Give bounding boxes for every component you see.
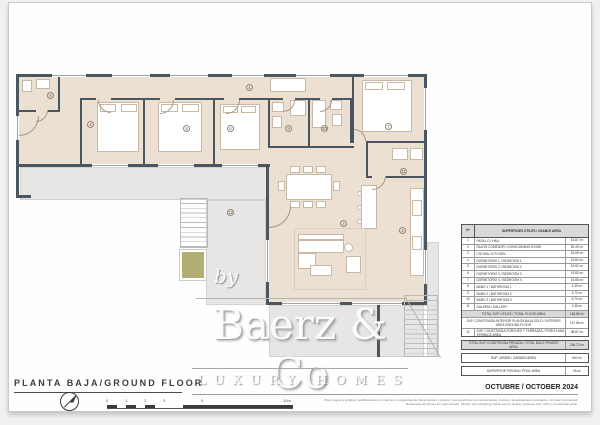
rug-outline	[294, 228, 366, 290]
area-row-num: 9	[462, 291, 475, 297]
window	[232, 74, 264, 77]
area-row-label: DORMITORIO 2 / BEDROOM 2	[475, 265, 565, 269]
garden-area-value: 540 m²	[565, 354, 588, 362]
stool	[357, 219, 362, 224]
window	[92, 164, 128, 167]
area-row-val: 4.35 m²	[565, 284, 588, 290]
area-row-label: BAÑO 1 / BATHROOM 1	[475, 285, 565, 289]
logo-divider-middle	[192, 368, 408, 369]
area-row: 8BAÑO 1 / BATHROOM 14.35 m²	[462, 284, 588, 291]
scale-segment	[202, 405, 293, 408]
furniture	[412, 200, 422, 216]
wall	[80, 100, 82, 164]
furniture	[316, 166, 326, 173]
page: { "document": { "floor_title": "PLANTA B…	[0, 0, 600, 425]
wall	[16, 167, 19, 198]
furniture	[290, 166, 300, 173]
door-opening	[354, 141, 366, 143]
furniture	[332, 114, 342, 126]
area-row-num: 5	[462, 264, 475, 270]
area-row-num: 1	[462, 238, 475, 244]
area-row-label: DORMITORIO 4 / BEDROOM 4	[475, 278, 565, 282]
scale-label-1: 1	[125, 398, 127, 403]
scale-segment	[145, 405, 155, 408]
scale-label-5: 5	[201, 398, 203, 403]
window	[296, 74, 330, 77]
disclaimer-line-2: Measurements shown are approximate. Kitc…	[288, 402, 578, 406]
floor-title: PLANTA BAJA/GROUND FLOOR	[14, 378, 203, 388]
area-row-num: 2	[462, 245, 475, 251]
total-built-label: TOTAL SUP. CONSTRUIDA PRIVADA / TOTAL BU…	[462, 341, 565, 350]
area-row-label: COCINA / KITCHEN	[475, 252, 565, 256]
window	[158, 164, 194, 167]
area-row-num: 7	[462, 278, 475, 284]
scale-segment	[107, 405, 117, 408]
window	[364, 74, 408, 77]
area-row-val: 15.82 m²	[565, 264, 588, 270]
window	[112, 74, 150, 77]
staircase	[180, 198, 208, 248]
area-row-label: PASILLO / HALL	[475, 239, 565, 243]
area-table-main-box: Nº SUPERFICIES ÚTILES / USABLE AREA 1PAS…	[461, 224, 589, 337]
scale-segment	[126, 405, 136, 408]
garden-area-row: SUP. JARDÍN / GARDEN AREA 540 m²	[461, 353, 589, 363]
wall	[143, 100, 145, 164]
garden-area-label: SUP. JARDÍN / GARDEN AREA	[462, 356, 565, 361]
area-row: 2SALÓN COMEDOR / LIVING-DINING ROOM52.49…	[462, 245, 588, 252]
furniture	[361, 185, 377, 229]
porches-number: 12	[462, 329, 475, 336]
furniture	[410, 148, 423, 160]
furniture	[392, 148, 408, 160]
area-row-val: 3.35 m²	[565, 304, 588, 310]
header-number-col: Nº	[462, 225, 475, 237]
window	[424, 88, 427, 130]
total-usable-value: 168.85 m²	[565, 311, 588, 318]
room-marker-9: 9	[285, 125, 292, 132]
area-row-label: SALÓN COMEDOR / LIVING-DINING ROOM	[475, 245, 565, 249]
furniture	[290, 201, 300, 208]
scale-bar: 0 1 2 3 5 10m	[107, 398, 297, 412]
logo-divider-top	[196, 298, 406, 299]
area-row-num: 6	[462, 271, 475, 277]
furniture	[286, 174, 332, 200]
furniture	[333, 181, 340, 191]
window	[170, 74, 208, 77]
area-table-header: Nº SUPERFICIES ÚTILES / USABLE AREA	[462, 225, 588, 238]
wall	[268, 98, 270, 148]
pool-area-value: 28 m²	[565, 367, 588, 375]
planter-box	[180, 250, 206, 280]
furniture	[182, 104, 199, 112]
furniture	[387, 82, 405, 90]
floor-title-underline	[14, 392, 182, 393]
window	[266, 240, 269, 282]
area-row: 6DORMITORIO 3 / BEDROOM 315.82 m²	[462, 271, 588, 278]
porches-label: SUP. CONSTRUIDA PORCHES Y TERRAZAS / POR…	[475, 329, 565, 337]
scale-label-10m: 10m	[283, 398, 291, 403]
furniture	[121, 104, 137, 112]
furniture	[270, 78, 306, 92]
area-row: 1PASILLO / HALL18.87 m²	[462, 238, 588, 245]
furniture	[272, 116, 282, 128]
stool	[357, 205, 362, 210]
window	[52, 74, 86, 77]
area-table-rows: 1PASILLO / HALL18.87 m²2SALÓN COMEDOR / …	[462, 238, 588, 311]
built-interior-row: SUP. CONSTRUIDA INTERIOR PLANTA BAJA SOL…	[462, 317, 588, 328]
area-row-num: 11	[462, 304, 475, 310]
furniture	[22, 80, 32, 92]
furniture	[241, 106, 256, 113]
room-marker-8: 8	[47, 92, 54, 99]
area-row: 11GALERÍA / GALLERY3.35 m²	[462, 304, 588, 311]
room-marker-3: 3	[399, 227, 406, 234]
area-row-label: GALERÍA / GALLERY	[475, 305, 565, 309]
header-title: SUPERFICIES ÚTILES / USABLE AREA	[475, 229, 588, 233]
area-row-num: 3	[462, 251, 475, 257]
wall	[366, 143, 368, 178]
total-usable-label: TOTAL SUP. ÚTILES / TOTAL FLOOR AREA	[462, 311, 565, 316]
furniture	[365, 82, 383, 90]
room-marker-6: 6	[227, 125, 234, 132]
footer-rule	[192, 394, 578, 395]
room-marker-7: 7	[385, 123, 392, 130]
pool-area-row: SUPERFICIE PISCINA / POOL AREA 28 m²	[461, 366, 589, 376]
area-row-val: 6.70 m²	[565, 297, 588, 303]
scale-label-2: 2	[144, 398, 146, 403]
built-interior-value: 197.85 m²	[565, 318, 588, 328]
plan-date: OCTUBRE / OCTOBER 2024	[328, 384, 578, 391]
area-row-label: BAÑO 3 / BATHROOM 3	[475, 298, 565, 302]
north-compass-icon	[60, 392, 79, 411]
stool	[357, 191, 362, 196]
area-row: 3COCINA / KITCHEN15.06 m²	[462, 251, 588, 258]
total-built-row: TOTAL SUP. CONSTRUIDA PRIVADA / TOTAL BU…	[461, 340, 589, 350]
area-row-num: 10	[462, 297, 475, 303]
area-row: 9BAÑO 2 / BATHROOM 26.70 m²	[462, 291, 588, 298]
furniture	[303, 166, 313, 173]
room-marker-10: 10	[321, 125, 328, 132]
room-marker-11: 11	[400, 168, 407, 175]
terrace-area	[206, 200, 266, 305]
wall	[266, 164, 269, 305]
window	[424, 250, 427, 284]
area-row: 5DORMITORIO 2 / BEDROOM 215.82 m²	[462, 264, 588, 271]
scale-label-3: 3	[163, 398, 165, 403]
area-row-val: 15.06 m²	[565, 251, 588, 257]
built-interior-label: SUP. CONSTRUIDA INTERIOR PLANTA BAJA SOL…	[462, 319, 565, 328]
area-row-val: 15.85 m²	[565, 278, 588, 284]
room-marker-5: 5	[183, 125, 190, 132]
wall	[58, 76, 60, 112]
area-row-val: 18.87 m²	[565, 238, 588, 244]
area-row: 7DORMITORIO 4 / BEDROOM 415.85 m²	[462, 278, 588, 285]
area-row-num: 4	[462, 258, 475, 264]
room-marker-1: 1	[246, 84, 253, 91]
area-row-val: 15.82 m²	[565, 271, 588, 277]
disclaimer: Plano sujeto a posibles modificaciones p…	[288, 398, 578, 407]
area-table: Nº SUPERFICIES ÚTILES / USABLE AREA 1PAS…	[461, 224, 589, 376]
furniture	[303, 201, 313, 208]
scale-label-0: 0	[106, 398, 108, 403]
area-row-label: BAÑO 2 / BATHROOM 2	[475, 292, 565, 296]
terrace-area	[20, 167, 268, 200]
area-row-val: 13.84 m²	[565, 258, 588, 264]
area-row: 4DORMITORIO 1 / BEDROOM 113.84 m²	[462, 258, 588, 265]
scale-segment	[183, 405, 202, 408]
wall	[308, 98, 310, 148]
area-row-num: 8	[462, 284, 475, 290]
furniture	[278, 181, 285, 191]
area-row-label: DORMITORIO 3 / BEDROOM 3	[475, 272, 565, 276]
pool-area-label: SUPERFICIE PISCINA / POOL AREA	[462, 369, 565, 374]
porches-value: 38.87 m²	[565, 329, 588, 336]
total-usable-row: TOTAL SUP. ÚTILES / TOTAL FLOOR AREA 168…	[462, 311, 588, 318]
room-marker-4: 4	[87, 121, 94, 128]
furniture	[412, 236, 422, 250]
wall	[268, 146, 354, 148]
area-row-val: 52.49 m²	[565, 245, 588, 251]
area-row-val: 6.70 m²	[565, 291, 588, 297]
logo-by-text: by	[214, 264, 238, 288]
area-row: 10BAÑO 3 / BATHROOM 36.70 m²	[462, 297, 588, 304]
porches-row: 12 SUP. CONSTRUIDA PORCHES Y TERRAZAS / …	[462, 328, 588, 336]
wall	[16, 195, 31, 198]
wall	[213, 100, 215, 164]
furniture	[36, 79, 50, 89]
room-marker-2: 2	[340, 220, 347, 227]
furniture	[316, 201, 326, 208]
window	[222, 164, 258, 167]
total-built-value: 236.72 m²	[565, 341, 588, 349]
room-marker-12: 12	[227, 209, 234, 216]
area-row-label: DORMITORIO 1 / BEDROOM 1	[475, 259, 565, 263]
